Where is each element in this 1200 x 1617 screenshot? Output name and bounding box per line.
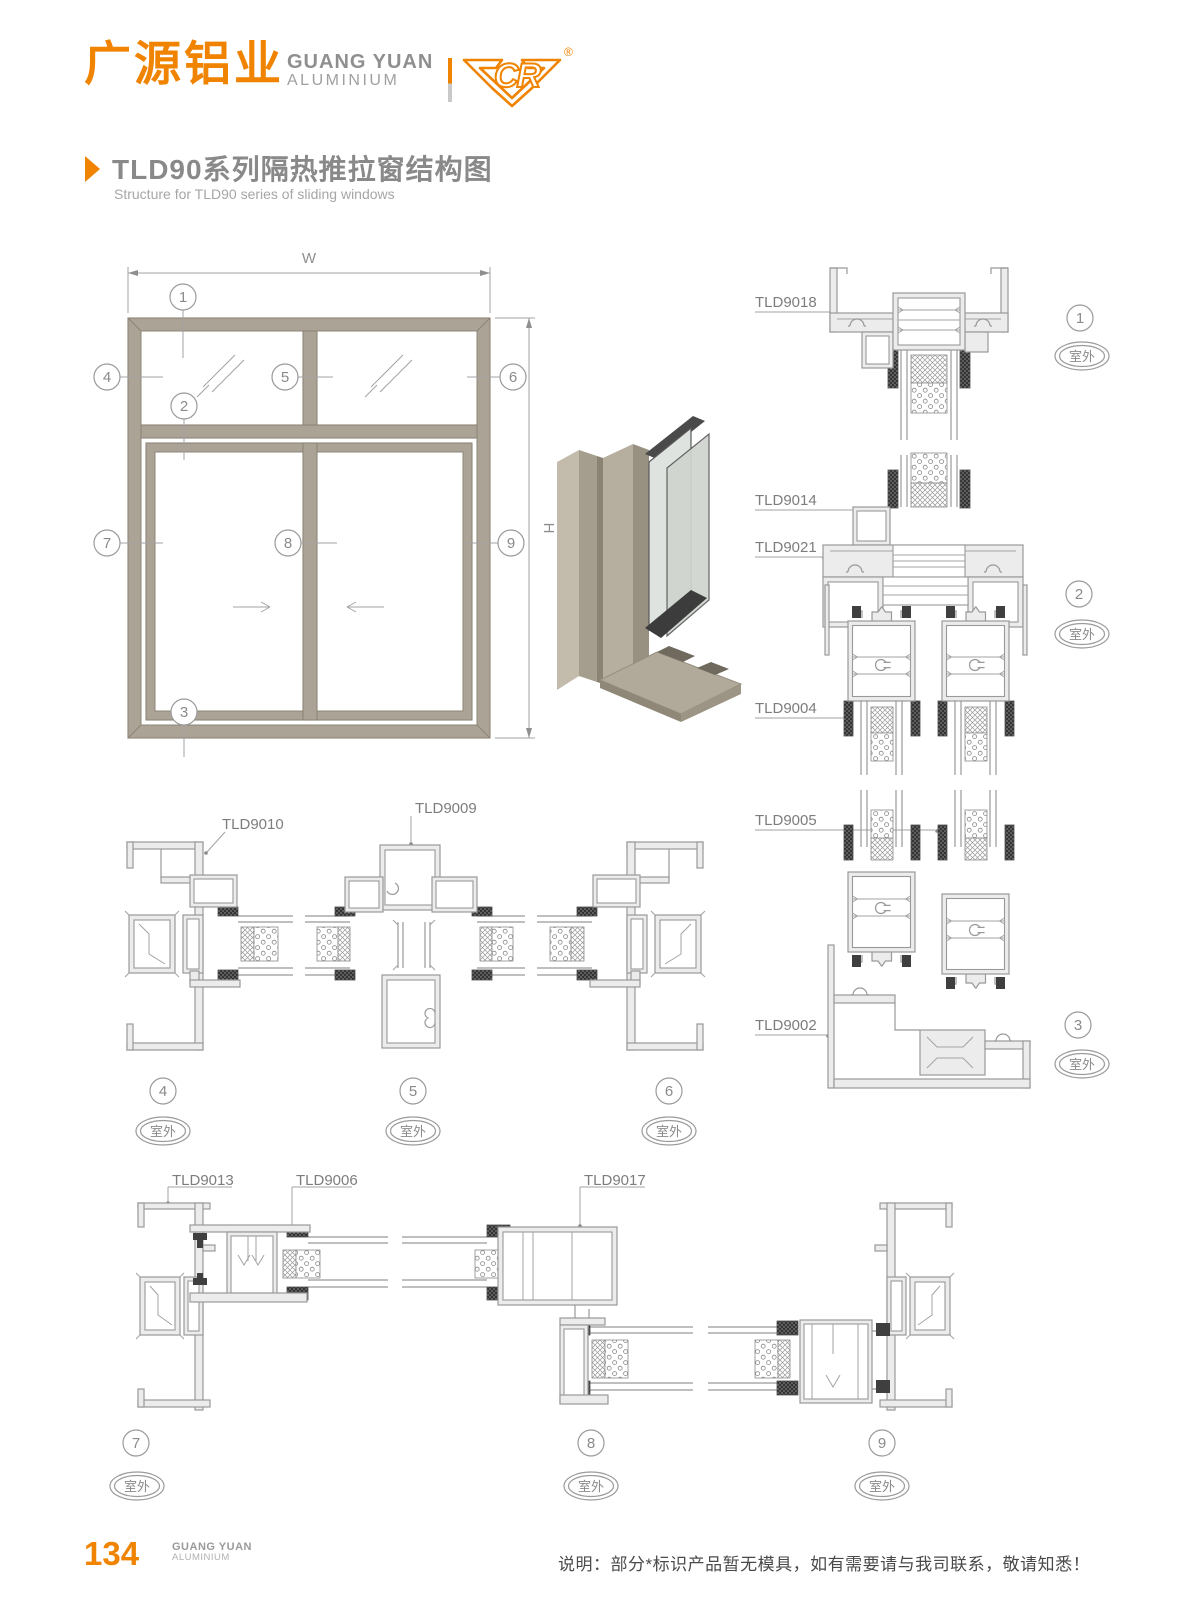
part-label: TLD9004 xyxy=(755,700,817,717)
mullion-section-5 xyxy=(345,845,477,1048)
bottom-callouts: 7 室外 8 室外 9 室外 xyxy=(110,1430,909,1500)
svg-text:6: 6 xyxy=(509,369,517,386)
jamb-section-9 xyxy=(875,1203,954,1410)
window-elevation-diagram: W H 1 xyxy=(85,245,555,765)
svg-text:3: 3 xyxy=(180,704,188,721)
footer-brand-line2: ALUMINIUM xyxy=(172,1553,252,1563)
part-label: TLD9018 xyxy=(755,294,817,311)
svg-text:室外: 室外 xyxy=(150,1124,176,1139)
vertical-section-callouts: 1 室外 2 室外 3 室外 xyxy=(1055,305,1109,1078)
footer-brand: GUANG YUAN ALUMINIUM xyxy=(172,1541,252,1564)
svg-text:2: 2 xyxy=(1075,586,1083,603)
svg-text:1: 1 xyxy=(179,289,187,306)
cr-logo: CR ® xyxy=(460,44,580,114)
svg-text:8: 8 xyxy=(587,1435,595,1452)
brand-en-line2: ALUMINIUM xyxy=(287,73,433,90)
svg-text:7: 7 xyxy=(103,535,111,552)
lower-track-glass xyxy=(578,1321,798,1395)
svg-text:7: 7 xyxy=(132,1435,140,1452)
svg-text:4: 4 xyxy=(159,1083,167,1100)
cr-logo-letters: CR xyxy=(494,57,542,95)
sash-bottom-left xyxy=(848,872,915,967)
page-title: TLD90系列隔热推拉窗结构图 xyxy=(112,148,493,188)
svg-text:9: 9 xyxy=(878,1435,886,1452)
brand-english: GUANG YUAN ALUMINIUM xyxy=(287,52,433,90)
svg-text:9: 9 xyxy=(507,535,515,552)
horizontal-section-lower-drawing: TLD9013 TLD9006 TLD9017 xyxy=(100,1145,980,1505)
glass-unit-right xyxy=(472,907,597,980)
title-bullet-icon xyxy=(85,156,100,182)
profile-3d-render xyxy=(545,392,750,722)
page-number: 134 xyxy=(84,1537,139,1570)
fixed-glass-unit xyxy=(888,350,970,508)
part-label: TLD9021 xyxy=(755,539,817,556)
svg-text:5: 5 xyxy=(281,369,289,386)
catalog-page: 广源铝业 GUANG YUAN ALUMINIUM CR ® TLD90系列隔热… xyxy=(0,0,1200,1617)
vertical-section-drawing: TLD9018 TLD9014 TLD9021 TLD9004 TLD9005 … xyxy=(735,255,1120,1080)
svg-text:室外: 室外 xyxy=(124,1479,150,1494)
svg-text:室外: 室外 xyxy=(656,1124,682,1139)
footer-note: 说明：部分*标识产品暂无模具，如有需要请与我司联系，敬请知悉！ xyxy=(558,1550,1090,1575)
svg-text:6: 6 xyxy=(665,1083,673,1100)
svg-text:室外: 室外 xyxy=(400,1124,426,1139)
part-label: TLD9010 xyxy=(222,816,284,833)
part-label: TLD9017 xyxy=(584,1172,646,1189)
svg-text:3: 3 xyxy=(1074,1017,1082,1034)
part-label: TLD9002 xyxy=(755,1017,817,1034)
horizontal-section-upper-drawing: TLD9010 TLD9009 xyxy=(95,785,735,1145)
svg-text:5: 5 xyxy=(409,1083,417,1100)
part-label: TLD9005 xyxy=(755,812,817,829)
svg-text:2: 2 xyxy=(180,398,188,415)
svg-text:室外: 室外 xyxy=(1069,627,1095,642)
middle-callouts: 4 室外 5 室外 6 室外 xyxy=(136,1078,696,1145)
part-label: TLD9013 xyxy=(172,1172,234,1189)
header-divider xyxy=(448,58,452,102)
registered-mark: ® xyxy=(564,45,573,59)
sliding-glass-upper xyxy=(844,701,1014,860)
jamb-section-4 xyxy=(125,842,240,1050)
jamb-section-6 xyxy=(590,842,705,1050)
brand-chinese: 广源铝业 xyxy=(84,40,284,87)
part-label: TLD9006 xyxy=(296,1172,358,1189)
brand-en-line1: GUANG YUAN xyxy=(287,52,433,73)
interlock-profile xyxy=(498,1227,617,1323)
svg-text:室外: 室外 xyxy=(869,1479,895,1494)
head-frame-profile xyxy=(830,268,1008,368)
glass-unit-left xyxy=(218,907,355,980)
sash-bottom-right xyxy=(942,894,1009,989)
svg-text:8: 8 xyxy=(284,535,292,552)
svg-text:室外: 室外 xyxy=(1069,1057,1095,1072)
upper-track-glass xyxy=(283,1225,512,1300)
part-label: TLD9009 xyxy=(415,800,477,817)
window-frame xyxy=(128,318,490,738)
svg-text:W: W xyxy=(302,250,317,267)
svg-text:室外: 室外 xyxy=(578,1479,604,1494)
svg-text:室外: 室外 xyxy=(1069,349,1095,364)
svg-text:4: 4 xyxy=(103,369,111,386)
svg-text:1: 1 xyxy=(1076,310,1084,327)
part-label: TLD9014 xyxy=(755,492,817,509)
page-subtitle: Structure for TLD90 series of sliding wi… xyxy=(114,186,395,202)
